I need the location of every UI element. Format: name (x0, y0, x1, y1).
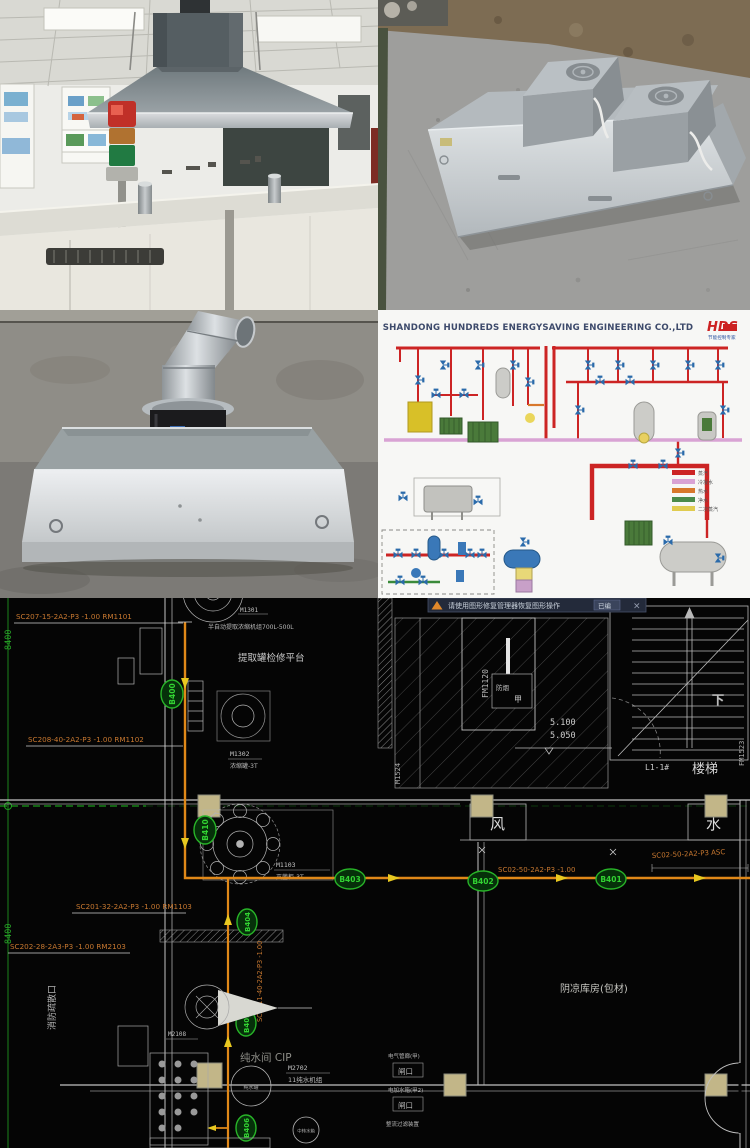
equip-m1301-desc: 半自动提取浓缩机组700L-500L (208, 623, 294, 631)
tag-b406: B406 (243, 1118, 251, 1138)
pipe-label-sc02: SC02-50-2A2-P3 -1.00 (498, 866, 575, 874)
hood-tray (22, 428, 354, 577)
legend-label: 二次蒸汽 (698, 506, 718, 513)
tank-label: 纯水罐 (243, 1084, 258, 1091)
dimension-8400: 8400 (4, 630, 14, 650)
fan-unit-photo (0, 310, 378, 598)
equip-m2702-desc: 11纯水机组 (288, 1075, 323, 1084)
room-r4: 闸口 (398, 1101, 413, 1110)
pipe-label-sc207: SC207-15-2A2-P3 -1.00 RM1101 (16, 612, 132, 621)
tag-b403: B403 (339, 875, 360, 884)
nameplate (440, 138, 452, 146)
stair-id: L1-1# (645, 763, 669, 772)
room-shui: 水 (706, 815, 721, 833)
notification-button-label[interactable]: 已编 (598, 601, 612, 610)
tank-label: 中转水箱 (297, 1128, 315, 1135)
legend-label: 蒸汽 (698, 470, 708, 477)
yellow-indicator (525, 413, 535, 423)
door-fm1523: FM1523 (738, 741, 746, 766)
equip-m1302: M1302 (230, 750, 250, 758)
room-feng: 风 (490, 815, 505, 833)
outdoor-hood-photo (378, 0, 750, 310)
room-r3: 电加水箱(甲2) (388, 1086, 423, 1094)
logo-subtext: 节能控制专家 (708, 334, 736, 341)
equip-m1302-desc: 浓缩罐-3T (230, 762, 258, 770)
close-icon[interactable]: × (633, 602, 641, 612)
tag-b400: B400 (168, 683, 177, 704)
room-pure-water: 纯水间 CIP (240, 1051, 292, 1064)
cad-notification-bar: 请使用图形修复管理器恢复图形操作 已编 × (428, 598, 646, 612)
equip-m1301: M1301 (240, 607, 258, 614)
legend-label: 热水 (698, 488, 708, 495)
equip-m1103: M1103 (276, 861, 296, 869)
stair-label: 楼梯 (692, 762, 718, 777)
pipe-label-sc201: SC201-32-2A2-P3 -1.00 RM1103 (76, 902, 192, 911)
legend-label: 冷凝水 (698, 479, 713, 486)
tag-b402: B402 (472, 877, 493, 886)
room-r1: 电气管廊(甲) (388, 1052, 420, 1060)
room-fangyan: 防烟 (496, 683, 510, 692)
hood-indicator-light (72, 114, 84, 120)
room-r2: 闸口 (398, 1067, 413, 1076)
tag-b404: B404 (244, 912, 252, 932)
lab-hood-photo (0, 0, 378, 310)
room-jia: 甲 (514, 695, 522, 704)
elevation-5050: 5.050 (550, 731, 576, 741)
company-title: SHANDONG HUNDREDS ENERGYSAVING ENGINEERI… (383, 323, 693, 333)
equip-m2702: M2702 (288, 1064, 308, 1072)
vent-grille (46, 248, 164, 265)
stairs-down-label: 下 (712, 693, 724, 707)
notification-message: 请使用图形修复管理器恢复图形操作 (448, 601, 560, 610)
dimension-8400: 8400 (4, 924, 14, 944)
hatched-room: FM1120 防烟 甲 (395, 618, 608, 788)
fire-exit-label: 消防疏散口 (46, 985, 58, 1030)
platform-label: 提取罐检修平台 (238, 652, 305, 664)
warehouse-label: 阴凉库房(包材) (560, 982, 628, 995)
tag-b401: B401 (600, 875, 621, 884)
legend-label: 净水 (698, 497, 708, 504)
equip-m1524: M1524 (394, 763, 402, 784)
product-collage: SHANDONG HUNDREDS ENERGYSAVING ENGINEERI… (0, 0, 750, 1148)
pipe-label-sc208: SC208-40-2A2-P3 -1.00 RM1102 (28, 735, 144, 744)
room-r5: 整流过滤装置 (386, 1120, 420, 1128)
elevation-5100: 5.100 (550, 718, 576, 728)
equip-m2108: M2108 (168, 1031, 186, 1038)
door-fm1120: FM1120 (481, 669, 490, 698)
pipe-label-sc202: SC202-28-2A3-P3 -1.00 RM2103 (10, 942, 126, 951)
company-logo: HDS 节能控制专家 (707, 320, 738, 341)
piping-diagram: SHANDONG HUNDREDS ENERGYSAVING ENGINEERI… (378, 310, 750, 598)
tag-b410: B410 (201, 819, 210, 840)
cad-floorplan: 8400 8400 (0, 598, 750, 1148)
